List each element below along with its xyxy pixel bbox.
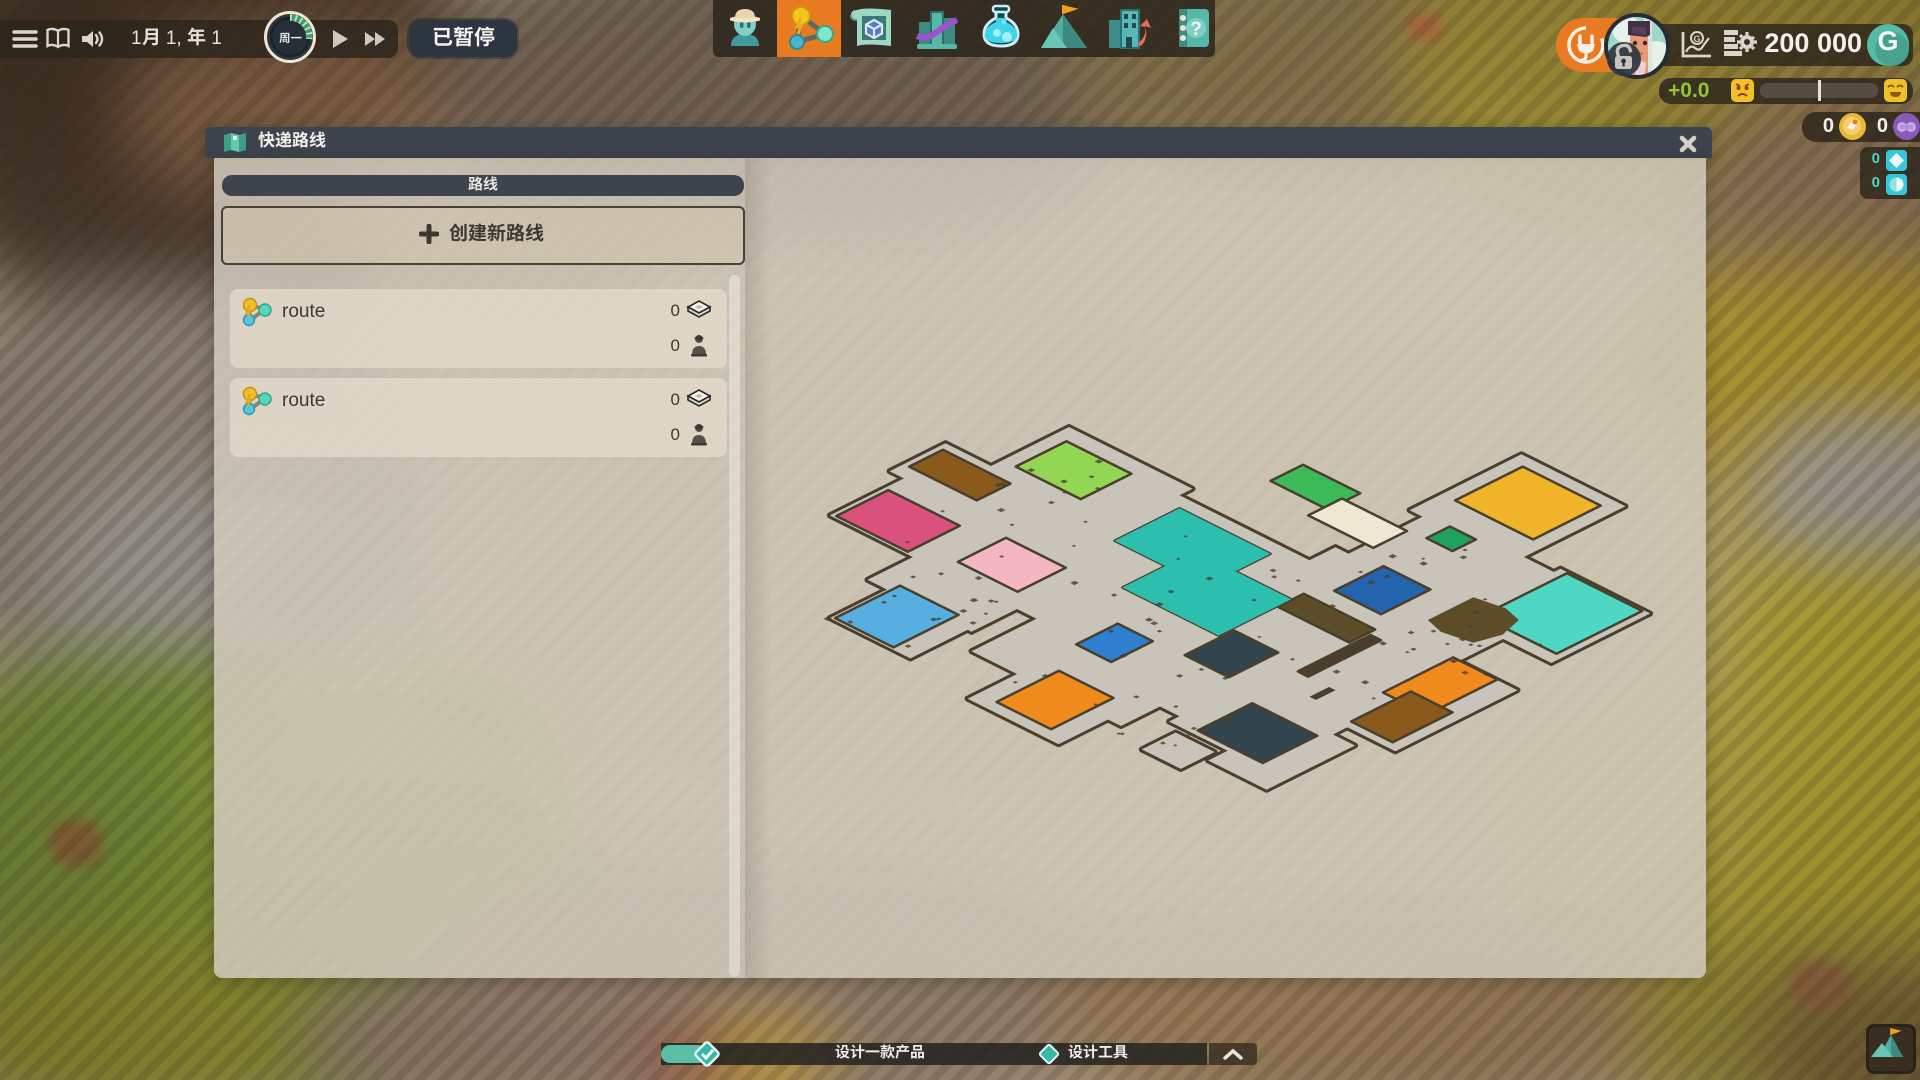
svg-text:G: G — [1693, 34, 1700, 44]
svg-text:?: ? — [1190, 19, 1202, 40]
